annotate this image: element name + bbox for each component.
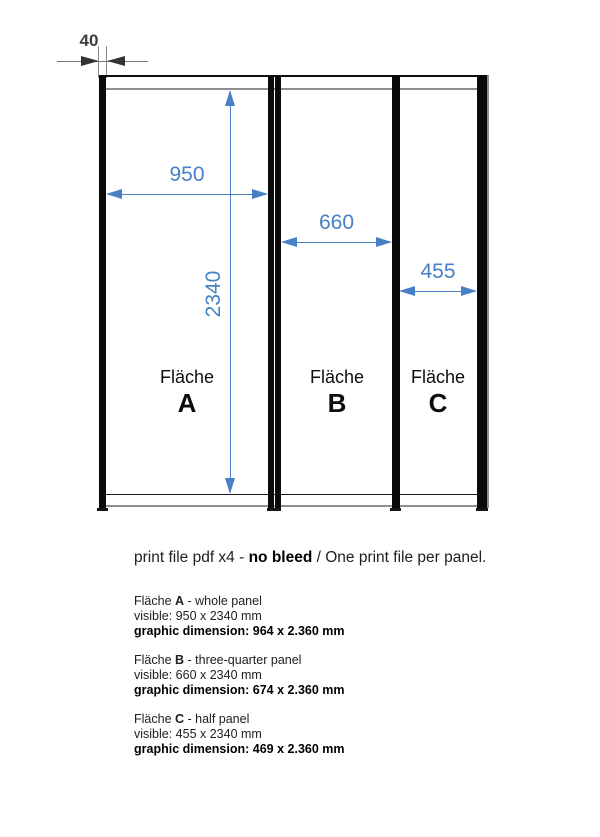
- arrow-right-icon: [252, 189, 268, 199]
- spec-panel-c-desc: - half panel: [184, 712, 249, 726]
- spec-panel-b-visible: visible: 660 x 2340 mm: [134, 668, 345, 683]
- spec-panel-b-graphic: graphic dimension: 674 x 2.360 mm: [134, 683, 345, 698]
- spec-panel-b-title: Fläche B - three-quarter panel: [134, 653, 345, 668]
- dimension-panel-height-label: 2340: [186, 266, 242, 322]
- spec-panel-c-name: Fläche: [134, 712, 175, 726]
- arrow-right-icon: [461, 286, 477, 296]
- panel-c-label: Fläche C: [388, 367, 488, 417]
- post-foot-ab: [267, 508, 281, 511]
- arrow-left-icon: [399, 286, 415, 296]
- post-right: [477, 75, 487, 508]
- post-foot-bc: [390, 508, 401, 511]
- post-width-arrow-left-icon: [107, 56, 125, 66]
- post-width-arrow-right-icon: [81, 56, 99, 66]
- spec-panel-c: Fläche C - half panel visible: 455 x 234…: [134, 712, 345, 757]
- spec-panel-c-letter: C: [175, 712, 184, 726]
- spec-panel-a-desc: - whole panel: [184, 594, 262, 608]
- post-width-dimension-label: 40: [73, 31, 105, 51]
- arrow-right-icon: [376, 237, 392, 247]
- extension-line-left: [98, 46, 99, 78]
- dimension-panel-b-width-label: 660: [281, 211, 392, 237]
- spec-panel-b: Fläche B - three-quarter panel visible: …: [134, 653, 345, 698]
- technical-drawing-page: 40 950 660 455: [0, 0, 600, 837]
- note-suffix: / One print file per panel.: [312, 549, 486, 566]
- panel-c-name: Fläche: [388, 367, 488, 388]
- post-left: [99, 75, 106, 508]
- spec-panel-a-graphic: graphic dimension: 964 x 2.360 mm: [134, 624, 345, 639]
- spec-panel-a-name: Fläche: [134, 594, 175, 608]
- spec-panel-b-letter: B: [175, 653, 184, 667]
- panel-b-letter: B: [287, 389, 387, 417]
- extension-line-right: [106, 46, 107, 78]
- post-width-dimension-line: [57, 61, 148, 62]
- dimension-panel-a-width: 950: [106, 163, 268, 200]
- panel-c-letter: C: [388, 389, 488, 417]
- top-inner-rail-line: [106, 88, 487, 90]
- arrow-down-icon: [225, 478, 235, 494]
- note-bold: no bleed: [249, 549, 313, 566]
- panel-a-letter: A: [137, 389, 237, 417]
- dimension-panel-b-width: 660: [281, 211, 392, 248]
- bottom-inner-rail-line: [106, 494, 477, 495]
- post-foot-left: [97, 508, 108, 511]
- dimension-panel-b-width-line: [281, 237, 392, 248]
- post-separator-ab-2: [275, 75, 281, 508]
- spec-panel-c-title: Fläche C - half panel: [134, 712, 345, 727]
- spec-panel-c-visible: visible: 455 x 2340 mm: [134, 727, 345, 742]
- spec-panel-a: Fläche A - whole panel visible: 950 x 23…: [134, 594, 345, 639]
- print-file-note: print file pdf x4 - no bleed / One print…: [134, 549, 486, 567]
- panel-b-name: Fläche: [287, 367, 387, 388]
- panel-a-label: Fläche A: [137, 367, 237, 417]
- dimension-panel-a-width-line: [106, 189, 268, 200]
- dimension-panel-a-width-label: 950: [106, 163, 268, 189]
- panel-a-name: Fläche: [137, 367, 237, 388]
- note-prefix: print file pdf x4 -: [134, 549, 249, 566]
- spec-panel-b-name: Fläche: [134, 653, 175, 667]
- post-right-edge-line: [487, 75, 489, 508]
- spec-panel-a-title: Fläche A - whole panel: [134, 594, 345, 609]
- panel-b-label: Fläche B: [287, 367, 387, 417]
- post-separator-ab-1: [268, 75, 274, 508]
- dimension-panel-c-width: 455: [399, 260, 477, 297]
- bottom-rail-line: [99, 505, 489, 507]
- arrow-up-icon: [225, 90, 235, 106]
- dimension-panel-c-width-line: [399, 286, 477, 297]
- spec-panel-b-desc: - three-quarter panel: [184, 653, 301, 667]
- top-rail-line: [99, 75, 489, 77]
- dimension-panel-c-width-label: 455: [399, 260, 477, 286]
- arrow-left-icon: [106, 189, 122, 199]
- post-foot-right: [476, 508, 488, 511]
- spec-panel-c-graphic: graphic dimension: 469 x 2.360 mm: [134, 742, 345, 757]
- arrow-left-icon: [281, 237, 297, 247]
- spec-panel-a-letter: A: [175, 594, 184, 608]
- spec-panel-a-visible: visible: 950 x 2340 mm: [134, 609, 345, 624]
